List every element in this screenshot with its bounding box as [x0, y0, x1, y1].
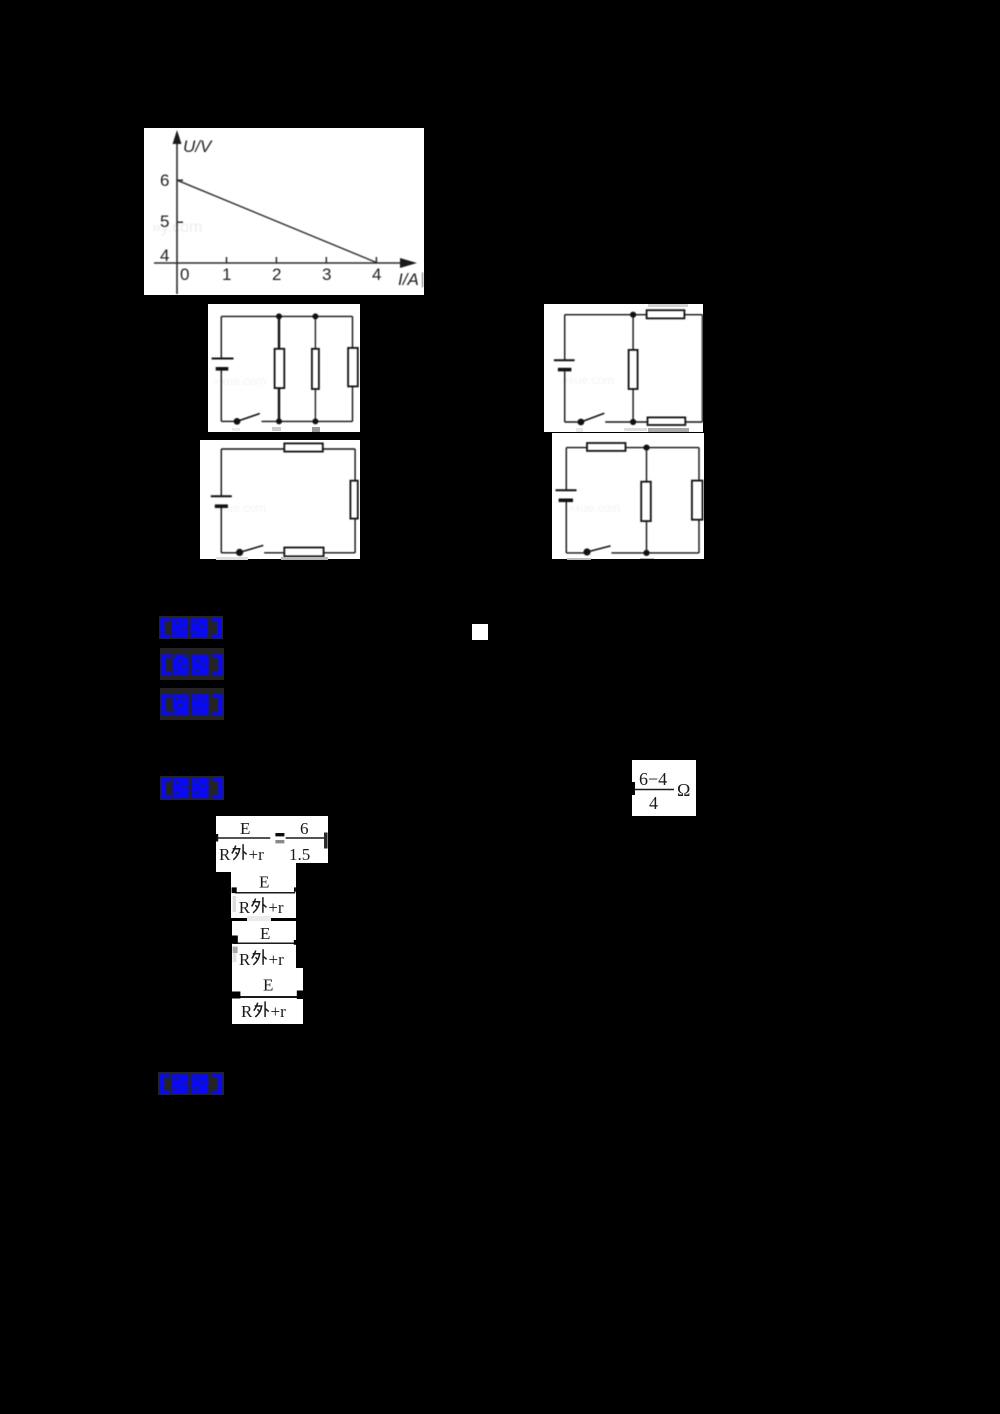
svg-text:5: 5: [160, 212, 169, 231]
svg-text:Ω: Ω: [677, 780, 690, 800]
svg-text:R: R: [241, 1002, 253, 1021]
svg-text:R: R: [239, 950, 251, 968]
svg-text:2: 2: [272, 265, 281, 284]
svg-text:6−4: 6−4: [639, 769, 667, 789]
svg-text:+r: +r: [268, 898, 284, 917]
svg-text:E: E: [240, 819, 250, 838]
svg-text:E: E: [259, 873, 269, 892]
svg-text:»xue.com: »xue.com: [562, 373, 614, 387]
svg-text:6: 6: [160, 171, 169, 190]
svg-text:1.5: 1.5: [289, 845, 310, 864]
svg-text:+r: +r: [249, 845, 265, 864]
svg-text:0: 0: [180, 265, 189, 284]
svg-text:4: 4: [649, 793, 658, 813]
svg-text:4: 4: [160, 246, 169, 265]
svg-text:»xue.com: »xue.com: [568, 501, 620, 515]
svg-text:+r: +r: [268, 950, 284, 968]
svg-text:U/V: U/V: [183, 137, 213, 156]
svg-text:+r: +r: [270, 1002, 286, 1021]
svg-text:E: E: [260, 924, 270, 943]
svg-text:4: 4: [372, 265, 381, 284]
svg-text:I/A: I/A: [398, 270, 419, 289]
svg-text:1: 1: [222, 265, 231, 284]
svg-text:E: E: [263, 975, 273, 994]
svg-text:R: R: [219, 845, 231, 864]
svg-text:R: R: [239, 898, 251, 917]
svg-text:6: 6: [300, 819, 309, 838]
svg-text:3: 3: [322, 265, 331, 284]
